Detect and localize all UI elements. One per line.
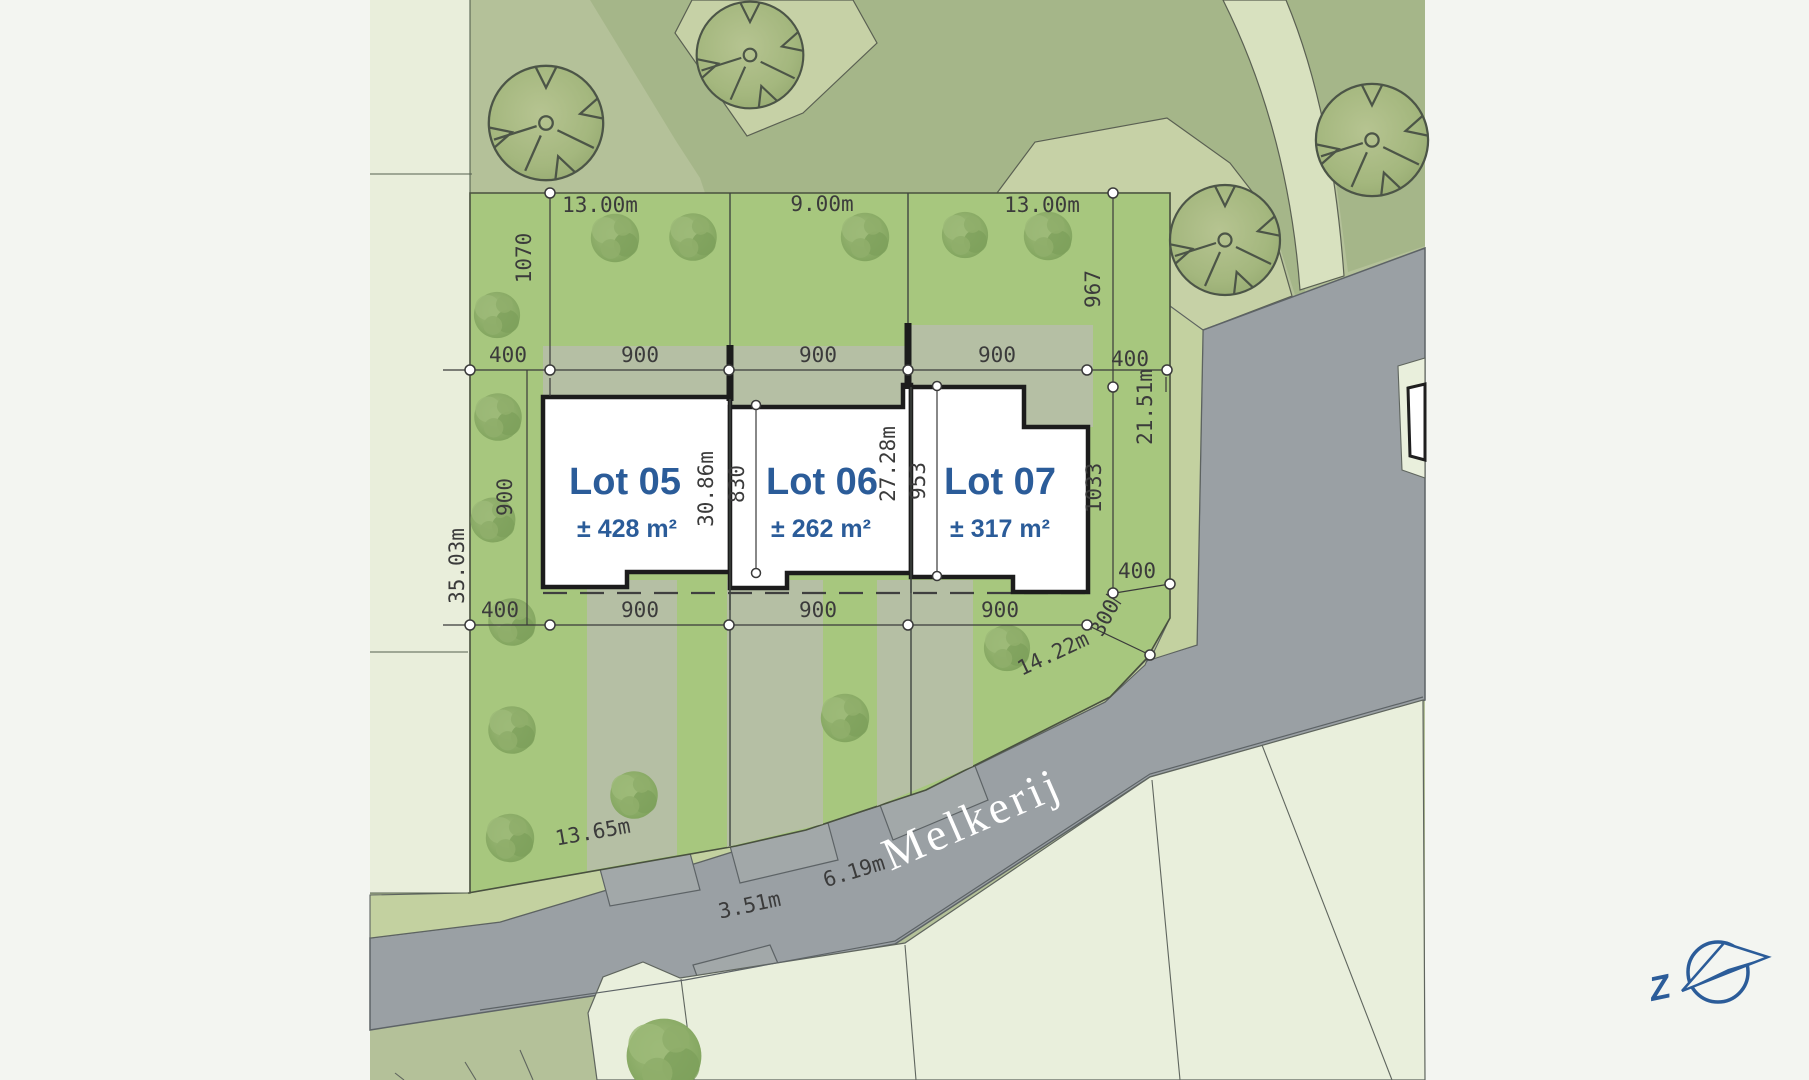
svg-text:30.86m: 30.86m [694, 451, 718, 527]
svg-text:Lot 06: Lot 06 [766, 461, 878, 503]
large-tree-icon [1316, 84, 1428, 196]
svg-text:900: 900 [799, 598, 837, 622]
svg-text:900: 900 [493, 478, 517, 516]
large-tree-icon [489, 66, 603, 180]
svg-text:830: 830 [725, 465, 749, 503]
svg-text:21.51m: 21.51m [1133, 369, 1157, 445]
svg-text:900: 900 [799, 343, 837, 367]
large-tree-icon [1170, 185, 1280, 295]
site-plan-drawing: 13.00m 9.00m 13.00m 400 900 900 900 400 … [0, 0, 1809, 1080]
neighbor-parcel-east [1398, 358, 1425, 478]
svg-text:953: 953 [906, 462, 930, 500]
svg-text:Lot 07: Lot 07 [944, 461, 1056, 503]
lot-06-label[interactable]: Lot 06 ± 262 m² [766, 461, 878, 543]
garden-width-label: 13.00m [562, 193, 638, 217]
lot-05-label[interactable]: Lot 05 ± 428 m² [569, 461, 681, 543]
svg-text:900: 900 [621, 343, 659, 367]
site-plan-page: 13.00m 9.00m 13.00m 400 900 900 900 400 … [0, 0, 1809, 1080]
svg-text:1033: 1033 [1082, 463, 1106, 514]
garden-width-label: 13.00m [1004, 193, 1080, 217]
svg-text:400: 400 [481, 598, 519, 622]
svg-text:27.28m: 27.28m [876, 426, 900, 502]
svg-text:400: 400 [1118, 559, 1156, 583]
svg-text:900: 900 [621, 598, 659, 622]
svg-text:900: 900 [978, 343, 1016, 367]
svg-text:± 317 m²: ± 317 m² [950, 515, 1050, 543]
lot-07-label[interactable]: Lot 07 ± 317 m² [944, 461, 1056, 543]
large-tree-icon [697, 2, 804, 109]
svg-text:900: 900 [981, 598, 1019, 622]
svg-text:1070: 1070 [512, 233, 536, 284]
garden-width-label: 9.00m [790, 192, 853, 216]
svg-text:967: 967 [1081, 270, 1105, 308]
neighbor-parcels-west [370, 0, 472, 893]
svg-text:35.03m: 35.03m [445, 528, 469, 604]
svg-text:± 262 m²: ± 262 m² [771, 515, 871, 543]
svg-text:400: 400 [489, 343, 527, 367]
svg-text:400: 400 [1111, 347, 1149, 371]
svg-text:Lot 05: Lot 05 [569, 461, 681, 503]
svg-text:± 428 m²: ± 428 m² [577, 515, 677, 543]
